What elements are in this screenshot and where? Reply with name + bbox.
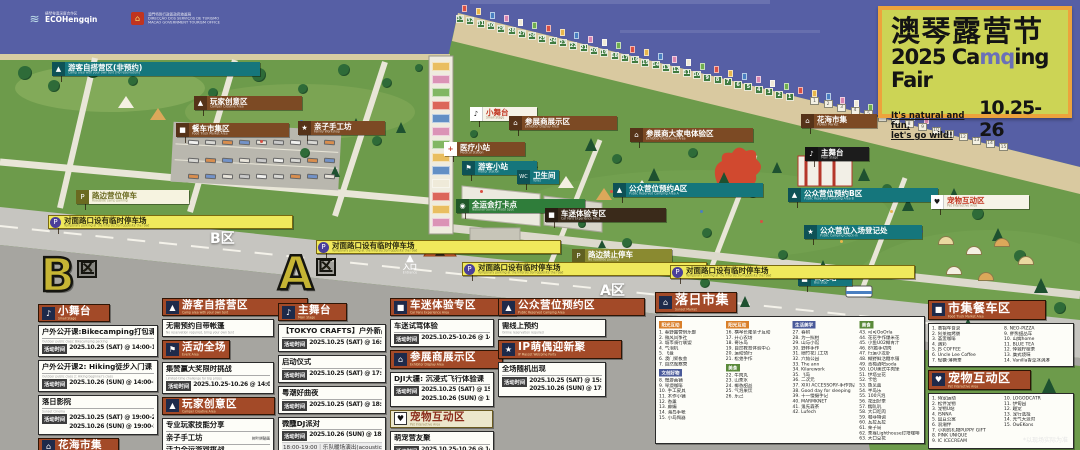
event-card: 【TOKYO CRAFTS】户外新品发布 活动时间 2025.10.25 (SA… (278, 324, 386, 352)
hengqin-logo-en: ECOHengqin (45, 16, 117, 24)
list-item: 2025.10.25 (SAT) @ 17:00-18:00 (309, 370, 382, 379)
car-icon: ■ (394, 301, 407, 314)
flower-market-header: ⌂ 花海市集Flower Market (38, 438, 119, 450)
flag-icon: ⚑ (462, 161, 475, 175)
event-card: 集赞赢大奖限时挑战 Limited-time challenge for big… (162, 362, 274, 394)
event-card: 全场随机出现 活动时间 2025.10.25 (SAT) @ 15:00-15:… (498, 362, 606, 397)
hengqin-logo: ≋ 横琴粤澳深度合作区 ECOHengqin (28, 12, 117, 25)
public-camp-header: ▲ 公众营位预约区Public Reserved Camping Area (498, 298, 645, 316)
parking-icon: P (572, 249, 585, 263)
panel-col-b: ♪ 小舞台Small Stage 户外公开课:Bikecamping打包课 Ou… (38, 304, 158, 450)
panel-sunset-market: ⌂ 落日市集Sunset Market 阳光互动 1. 春野露营俱乐部2. 微风… (655, 292, 925, 444)
panel-col-selfcamp: ▲ 游客自搭营区Camp area with your own tent 无需预… (162, 298, 274, 450)
flag-icon: ⚑ (166, 343, 179, 356)
dog-icon: ♥ (394, 412, 407, 425)
panel-col-right: ■ 市集餐车区Food Truck Market Area 1. 荟锦车食录2.… (928, 300, 1074, 449)
entrance-marker: ▲ 入口 Entrance (392, 254, 428, 274)
pet-area-header: ♥ 宠物互动区Pet Interactive Area (390, 410, 493, 428)
list-item: 2025.10.25-10.26 @ 14:00-21:00 (421, 446, 490, 450)
list-item: 2025.10.25 (SAT) @ 14:00-15:00 (69, 344, 154, 353)
exhibitor-header: ⌂ 参展商展示区Exhibitor Display Area (390, 350, 503, 368)
list-item: 2025.10.25 (SAT) @ 18:30-21:00 (309, 401, 382, 410)
list-item: 18:00-19:00｜乐队暖场演出(acoustic) (282, 442, 382, 450)
map-label-exhibitor-display: ⌂参展商展示区Exhibitor Display Area (509, 116, 617, 130)
list-item: 2025.10.25 (SAT) @ 15:00-16:30 (421, 386, 490, 395)
sunset-market-list: 阳光互动 1. 春野露营俱乐部2. 微风风筝社3. 城市骑行联盟4. 气泡机5.… (655, 316, 925, 444)
house-icon: ⌂ (801, 114, 814, 128)
lantern-icon: ⌂ (630, 128, 643, 142)
event-title-cn: 澳琴露营节 (891, 17, 1059, 46)
map-label-temp-parking-1: P对面路口设有临时停车场Temporary parking at the int… (48, 215, 293, 229)
mgto-logo-pt: DIRECÇÃO DOS SERVIÇOS DE TURISMO (148, 17, 306, 19)
list-item: 2025.10.25 (SAT) @ 19:00-21:00 (69, 414, 154, 423)
list-item: 42. Lufech (793, 410, 855, 415)
map-label-roadside-parking: P路边营位停车Roadside camp parking (76, 190, 189, 204)
pet-zone-header: ♥ 宠物互动区Pet Interactive Area (928, 370, 1031, 390)
lantern-icon: ⌂ (394, 353, 407, 366)
tent-icon: ▲ (194, 96, 207, 110)
creative-area-header: ▲ 玩家创意区Camper Creative Area (162, 397, 275, 415)
list-item: 2025.10.26 (SUN) @ 19:00-21:00 (69, 423, 154, 432)
sunset-market-header: ⌂ 落日市集Sunset Market (655, 292, 737, 313)
map-label-toilet: WC卫生间Toilet (517, 170, 559, 184)
parking-icon: P (672, 267, 683, 278)
truck-icon: ■ (932, 303, 945, 316)
hengqin-logo-cn: 横琴粤澳深度合作区 (45, 12, 116, 14)
star-icon: ★ (502, 343, 515, 356)
event-card: 萌宠营友聚 活动时间 2025.10.25-10.26 @ 14:00-21:0… (390, 431, 494, 450)
note-card: 无需预约自带帐篷 No reservation required, bring … (162, 319, 274, 337)
list-item: 2025.10.25-10.26 @ 14:00-21:00 (193, 381, 270, 390)
event-card: 粤潮好曲夜 活动时间 2025.10.25 (SAT) @ 18:30-21:0… (278, 386, 386, 414)
event-dates: 10.25-26 (979, 97, 1059, 141)
list-item: 7. 轻糖·薄荷茶 (932, 358, 998, 363)
event-card: 落日影院 Sunset Cinema 活动时间 2025.10.25 (SAT)… (38, 395, 158, 434)
note-card: 需线上预约 Online reservation required (498, 319, 606, 337)
person-icon: ★ (804, 225, 817, 239)
food-truck-list: 1. 荟锦车食录2. 阿莱福烤肠3. 荟盅咖啡4. 遇彩5. JS COFFEE… (928, 323, 1074, 367)
list-item: 2025.10.26 (SUN) @ 17:00-18:00 (529, 385, 602, 394)
map-label-family-workshop: ★亲子手工坊Family Workshop (298, 121, 385, 135)
tent-icon: ▲ (166, 301, 179, 314)
tent-icon: ▲ (166, 399, 179, 412)
event-card: 专业玩家技能分享 亲子手工坊树叶拼贴画/环保花艺摆盘 活力全运游戏挑战 活动时间… (162, 418, 274, 450)
music-icon: ♪ (805, 147, 818, 161)
parking-icon: P (50, 217, 61, 228)
house-icon: ⌂ (659, 296, 672, 309)
map-label-camp-checkin: ★公众营位入场登记处Public Camping Check-in (804, 225, 922, 239)
parking-icon: P (76, 190, 89, 204)
map-label-temp-parking-2: P对面路口设有临时停车场Temporary parking at the int… (316, 240, 561, 254)
list-item: 2025.10.25-10.26 @ 14:00-21:00 (421, 334, 490, 343)
list-item: 2025.10.26 (SUN) @ 15:00-18:30 (421, 395, 490, 404)
map-label-creative-area: ▲玩家创意区Camper Creative Area (194, 96, 302, 110)
list-item: 26. 乐己 (726, 394, 788, 399)
panel-col-public: ▲ 公众营位预约区Public Reserved Camping Area 需线… (498, 298, 606, 397)
zone-a-map-label: A区 (600, 280, 625, 300)
event-title-en: 2025 Camqing Fair (891, 46, 1059, 92)
parking-icon: P (464, 264, 475, 275)
small-stage-header: ♪ 小舞台Small Stage (38, 304, 110, 322)
list-item: 2025.10.25 (SAT) @ 15:00-15:30 (529, 377, 602, 386)
tent-icon: ▲ (502, 301, 515, 314)
medical-cross-icon: + (444, 142, 457, 156)
map-label-medical-station: +医疗小站Medical Station (444, 142, 525, 156)
zone-b-panel-letter: B区 (40, 252, 97, 298)
event-card: 户外公开课2: Hiking徒步入门课 Outdoor public class… (38, 360, 158, 392)
panel-col-a: ♪ 主舞台Main Stage 【TOKYO CRAFTS】户外新品发布 活动时… (278, 303, 386, 450)
map-label-food-truck-market: ■餐车市集区Food Truck Market Area (176, 123, 289, 137)
mgto-logo-cn: 澳門特別行政區政府旅遊局 (148, 13, 306, 15)
zone-b-map-label: B区 (210, 228, 235, 248)
event-card: 户外公开课:Bikecamping打包课 Outdoor public clas… (38, 325, 158, 357)
mgto-emblem-icon: ⌂ (131, 12, 144, 25)
event-all-header: ⚑ 活动全场Event Area (162, 340, 230, 358)
event-card: 微醺DJ派对 活动时间 2025.10.26 (SUN) @ 18:30-21:… (278, 417, 386, 450)
sponsor-logos: ≋ 横琴粤澳深度合作区 ECOHengqin ⌂ 澳門特別行政區政府旅遊局 DI… (28, 12, 308, 25)
zone-a-panel-letter: A区 (278, 250, 336, 296)
list-item: 2025.10.26 (SUN) @ 14:00-15:00 (69, 379, 154, 388)
event-card: 启动仪式 活动时间 2025.10.25 (SAT) @ 17:00-18:00 (278, 355, 386, 383)
list-item: 7. 自然观察营 (659, 362, 721, 367)
hengqin-wave-icon: ≋ (28, 12, 41, 25)
list-item: 15. 小岛陶器 (659, 415, 721, 420)
event-card: DJI大疆: 沉浸式飞行体验课 活动时间 2025.10.25 (SAT) @ … (390, 372, 494, 407)
list-item: 2025.10.25 (SAT) @ 16:00-16:30 (309, 339, 382, 348)
event-card: 车迷试驾体验 活动时间 2025.10.25-10.26 @ 14:00-21:… (390, 319, 494, 347)
mgto-logo: ⌂ 澳門特別行政區政府旅遊局 DIRECÇÃO DOS SERVIÇOS DE … (131, 12, 308, 25)
map-label-pet-area: ♥宠物互动区Pet Interactive Area (931, 195, 1029, 209)
map-label-self-camp-area: ▲游客自搭营区(非预约)Camp area with your own tent… (52, 62, 260, 76)
event-banner: 澳琴露营节 2025 Camqing Fair It's natural and… (878, 6, 1072, 118)
dog-icon: ♥ (931, 195, 944, 209)
tent-icon: ▲ (613, 183, 626, 197)
camera-icon: ◉ (456, 199, 469, 213)
lantern-icon: ⌂ (509, 116, 522, 130)
list-item: 9. IC ICECREAM (932, 438, 998, 443)
wc-icon: WC (517, 170, 530, 184)
music-icon: ♪ (282, 306, 295, 319)
map-label-main-stage: ♪主舞台Main Stage (805, 147, 869, 161)
map-label-public-camp-a: ▲公众营位预约A区Public Reserved Camping Area A (613, 183, 763, 197)
list-item: 2025.10.26 (SUN) @ 18:30-21:00 (309, 431, 382, 440)
truck-icon: ■ (176, 123, 189, 137)
list-item: 21. 松弛手作 (726, 357, 788, 362)
ip-mascot-header: ★ IP萌偶迎新聚IP Mascot Welcome Party (498, 340, 622, 358)
map-label-flower-market: ⌂花海市集Flower Market (801, 114, 877, 128)
map-label-public-camp-b: ▲公众营位预约B区Public Reserved Camping Area B (788, 188, 938, 202)
event-tagline: It's natural and fun,let's go wild! (891, 111, 979, 142)
music-icon: ♪ (42, 307, 55, 320)
map-label-exhibitor-experience: ⌂参展商大家电体验区Exhibitor Experience Area (630, 128, 753, 142)
list-item: 63. 大口豆花 (859, 436, 921, 441)
camping-fair-map-poster: 3332313029282726252423222120191817161514… (0, 0, 1080, 450)
panel-col-carfan: ■ 车迷体验专区Car Fans Experience Area 车迷试驾体验 … (390, 298, 494, 450)
tent-icon: ▲ (788, 188, 801, 202)
mgto-logo-en: MACAO GOVERNMENT TOURISM OFFICE (148, 21, 306, 23)
tent-icon: ▲ (52, 62, 65, 76)
car-icon: ■ (545, 208, 558, 222)
list-item: 15. OwEKons (1004, 422, 1070, 427)
list-item: 14. Vanilla香草冰淇淋 (1004, 358, 1070, 363)
map-label-no-parking: P路边禁止停车No roadside parking (572, 249, 672, 263)
star-icon: ★ (298, 121, 311, 135)
dog-icon: ♥ (932, 373, 945, 386)
music-icon: ♪ (470, 107, 483, 121)
disclaimer-note: *以现场实际为准 (1023, 435, 1068, 444)
house-icon: ⌂ (42, 440, 55, 450)
map-label-temp-parking-4: P对面路口设有临时停车场Temporary parking at the int… (670, 265, 915, 279)
food-truck-header: ■ 市集餐车区Food Truck Market Area (928, 300, 1046, 320)
map-label-car-fans-area: ■车迷体验专区Car Fans Experience Area (545, 208, 666, 222)
main-stage-header: ♪ 主舞台Main Stage (278, 303, 347, 321)
